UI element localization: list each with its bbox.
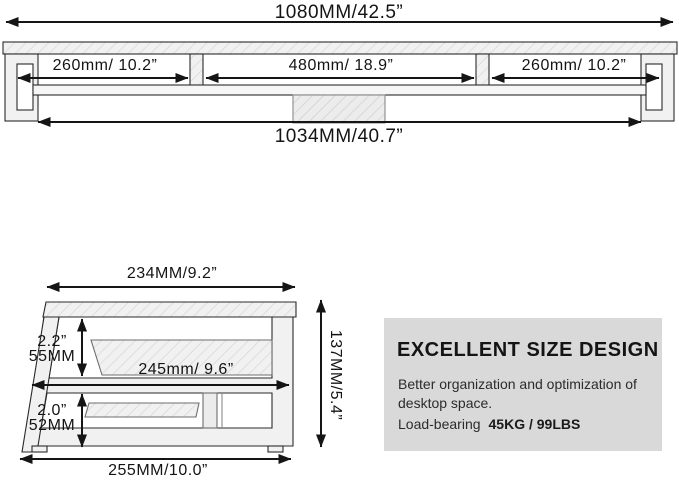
top-panel — [3, 42, 677, 54]
lower-shelf-bar — [33, 85, 646, 95]
inner-width-label: 1034MM/40.7” — [275, 126, 404, 148]
right-section-width-label: 260mm/ 10.2” — [522, 57, 627, 75]
side-bottom-width-label: 255MM/10.0” — [108, 462, 208, 480]
info-box-description: Better organization and optimization of … — [398, 375, 637, 434]
right-divider — [476, 54, 489, 86]
side-top-width-label: 234MM/9.2” — [127, 265, 217, 283]
left-section-width-label: 260mm/ 10.2” — [53, 57, 158, 75]
upper-clearance-label: 2.2” 55MM — [14, 334, 90, 364]
lower-clearance-label: 2.0” 52MM — [14, 403, 90, 433]
load-bearing-label: Load-bearing — [398, 416, 481, 432]
middle-section-width-label: 480mm/ 18.9” — [289, 57, 394, 75]
description-line-2: desktop space. — [398, 394, 637, 413]
front-view-drawing — [3, 42, 677, 123]
upper-clearance-inches: 2.2” — [14, 334, 90, 349]
bottom-shelf-panel — [85, 403, 199, 417]
left-leg-window — [17, 64, 33, 110]
side-top-panel — [43, 302, 296, 317]
lower-clearance-mm: 52MM — [14, 418, 90, 433]
overall-width-label: 1080MM/42.5” — [275, 2, 404, 24]
left-divider — [190, 54, 203, 86]
description-line-1: Better organization and optimization of — [398, 375, 637, 394]
center-support — [293, 95, 385, 123]
upper-clearance-mm: 55MM — [14, 349, 90, 364]
lower-clearance-inches: 2.0” — [14, 403, 90, 418]
left-foot — [32, 446, 47, 452]
load-bearing-line: Load-bearing45KG / 99LBS — [398, 415, 637, 434]
shelf-width-label: 245mm/ 9.6” — [138, 361, 233, 379]
info-box: EXCELLENT SIZE DESIGN Better organizatio… — [384, 318, 662, 451]
rear-support-column — [203, 393, 217, 428]
product-dimension-diagram: 1080MM/42.5” 260mm/ 10.2” 480mm/ 18.9” 2… — [0, 0, 679, 480]
info-box-title: EXCELLENT SIZE DESIGN — [397, 339, 659, 362]
total-height-label: 137MM/5.4” — [326, 330, 344, 420]
right-leg-window — [646, 64, 662, 110]
load-bearing-value: 45KG / 99LBS — [489, 416, 581, 432]
right-foot — [268, 446, 283, 452]
